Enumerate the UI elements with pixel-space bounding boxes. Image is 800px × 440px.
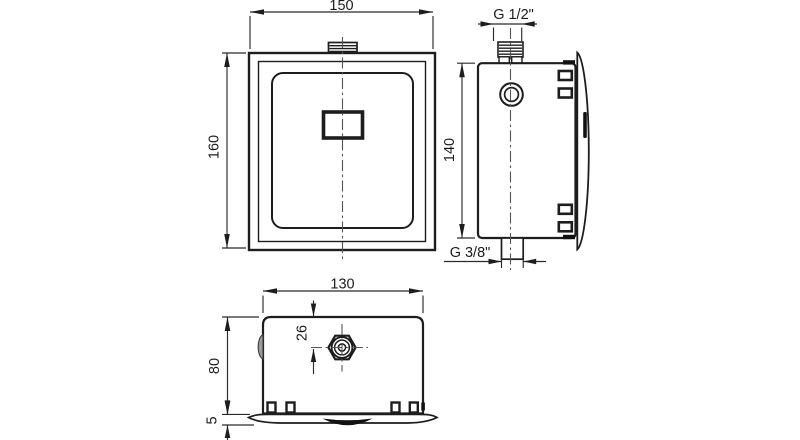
- bottom-depth-label: 80: [207, 358, 223, 374]
- side-height-label: 140: [442, 138, 458, 162]
- bottom-view: [249, 317, 438, 425]
- arrow-right: [419, 9, 433, 15]
- arrow-down: [459, 224, 465, 238]
- arrow-right: [481, 21, 494, 26]
- bottom-gasket: [563, 235, 575, 239]
- front-height-label: 160: [207, 135, 223, 159]
- side-bump: [258, 335, 263, 360]
- side-height-dimension: 140: [442, 63, 475, 238]
- bottom-width-label: 130: [330, 277, 354, 293]
- arrow-up: [225, 425, 231, 438]
- arrow-left: [523, 259, 536, 264]
- front-view: [249, 37, 435, 261]
- foot-2: [287, 403, 295, 413]
- technical-drawing-canvas: 150 160: [0, 0, 800, 440]
- arrow-up: [225, 317, 231, 331]
- side-button-inner: [505, 88, 519, 102]
- arrow-up: [459, 63, 465, 77]
- front-width-label: 150: [329, 0, 353, 14]
- arrow-down: [224, 234, 230, 248]
- arrow-left: [250, 9, 264, 15]
- side-outlet-dimension: G 3/8": [444, 245, 546, 268]
- side-inlet-dimension: G 1/2": [478, 7, 537, 41]
- inlet-thread-label: G 1/2": [493, 7, 534, 23]
- arrow-up: [224, 53, 230, 67]
- front-height-dimension: 160: [207, 53, 247, 248]
- flange-clip-mark: [583, 112, 587, 138]
- arrow-down: [225, 401, 231, 414]
- bottom-width-dimension: 130: [263, 277, 423, 314]
- top-gasket: [563, 60, 575, 64]
- clip-bottom-1: [559, 205, 572, 214]
- outlet-thread-label: G 3/8": [450, 245, 491, 261]
- arrow-right: [409, 288, 423, 294]
- wall-flange-profile: [577, 53, 589, 250]
- foot-3: [392, 403, 400, 413]
- foot-1: [268, 403, 276, 413]
- arrow-left: [263, 288, 277, 294]
- plate-thickness-label: 5: [205, 416, 221, 424]
- clip-top-1: [559, 71, 572, 80]
- clip-bottom-2: [559, 222, 572, 231]
- arrow-right: [489, 259, 502, 264]
- right-edge-mark: [421, 403, 425, 411]
- plate-thickness-dimension: 5: [205, 400, 255, 440]
- side-view: [478, 28, 589, 270]
- bottom-depth-dimension: 80: [207, 317, 259, 414]
- drawing-svg: 150 160: [0, 0, 800, 440]
- bottom-body: [263, 317, 423, 414]
- arrow-down: [311, 304, 316, 317]
- nut-offset-label: 26: [295, 325, 311, 341]
- clip-top-2: [559, 89, 572, 98]
- side-outlet-stub: [502, 238, 524, 259]
- foot-4: [410, 403, 418, 413]
